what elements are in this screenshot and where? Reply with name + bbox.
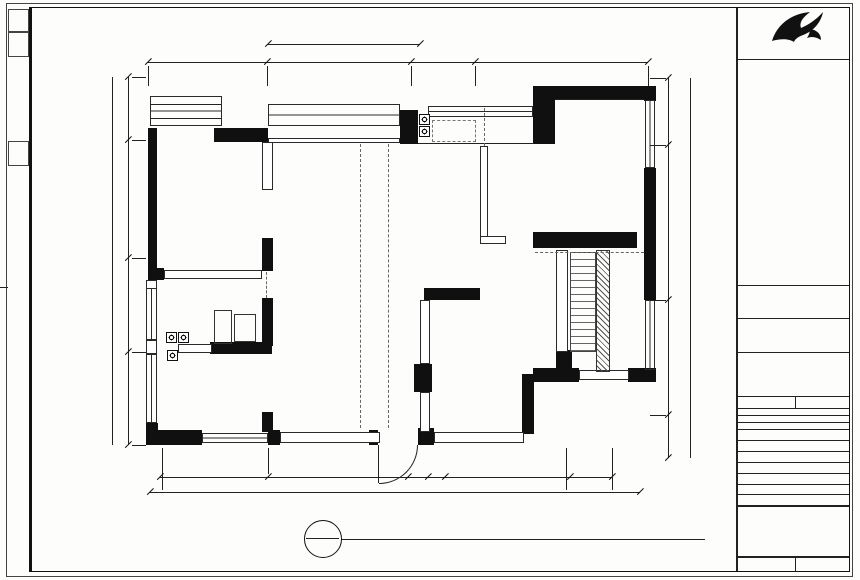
ext-line: [411, 66, 412, 86]
beam-dashed-line: [266, 272, 267, 298]
tb-line: [738, 422, 849, 423]
tb-line: [738, 451, 849, 452]
flue-icon: [166, 332, 177, 343]
wall-segment: [148, 268, 164, 280]
wall-segment: [555, 86, 645, 100]
margin-box-2: [8, 32, 29, 57]
wall-segment: [268, 430, 280, 445]
tb-line: [738, 429, 849, 430]
wall-segment: [628, 368, 656, 382]
thin-wall: [178, 344, 212, 353]
beam-dashed-line: [360, 144, 361, 428]
wall-segment: [644, 168, 656, 300]
title-underline: [306, 539, 705, 540]
bay-window: [150, 96, 222, 126]
wall-segment: [644, 86, 656, 101]
ext-line: [148, 66, 149, 86]
ext-line: [132, 445, 146, 446]
kitchen-window: [428, 106, 533, 117]
thin-wall: [268, 138, 400, 143]
tb-cell-divider: [795, 396, 796, 408]
thin-wall: [420, 392, 430, 432]
ext-line: [162, 448, 163, 490]
dim-line-left: [128, 77, 129, 445]
fixture-box: [234, 314, 256, 342]
bay-window-line: [151, 118, 221, 119]
tb-line: [738, 396, 849, 397]
margin-box-1: [8, 9, 29, 32]
margin-box-3: [8, 141, 29, 166]
ext-line: [650, 415, 666, 416]
flue-icon: [178, 332, 189, 343]
dim-line-left-total: [112, 77, 113, 445]
binding-mark: [0, 287, 8, 288]
brand-logo-icon: [768, 9, 828, 43]
ext-line: [650, 145, 666, 146]
fixture-box: [214, 310, 232, 344]
bay-window-line: [151, 104, 221, 105]
wall-segment: [262, 412, 273, 432]
thin-wall: [480, 146, 488, 238]
ext-line: [268, 448, 269, 474]
ext-line: [132, 77, 146, 78]
ext-line: [475, 66, 476, 86]
thin-wall: [280, 432, 380, 443]
wall-segment: [424, 288, 480, 300]
wall-segment: [522, 374, 534, 434]
ext-line: [650, 78, 666, 79]
wall-segment: [156, 430, 202, 445]
wall-segment: [533, 232, 637, 248]
drawing-stamp: [304, 520, 342, 558]
beam-dashed-line: [484, 108, 485, 146]
flue-icon: [419, 126, 430, 137]
flue-icon: [167, 350, 178, 361]
dim-line-right: [668, 78, 669, 458]
wall-segment: [556, 350, 572, 378]
tb-line: [738, 59, 849, 60]
tb-line: [738, 352, 849, 353]
right-window-lower: [645, 300, 655, 370]
thin-wall: [420, 300, 430, 364]
ext-line: [132, 352, 146, 353]
tb-cell-divider: [795, 556, 796, 571]
wall-segment: [400, 110, 418, 144]
thin-wall: [164, 270, 262, 279]
left-window-lower: [146, 354, 157, 423]
tb-line: [738, 556, 849, 558]
bottom-window: [202, 433, 268, 443]
dim-line-top: [148, 62, 648, 63]
tb-line: [738, 462, 849, 463]
ext-line: [650, 300, 666, 301]
stamp-divider: [306, 538, 339, 539]
balcony-window: [268, 104, 400, 126]
tb-line: [738, 484, 849, 485]
ext-line: [132, 140, 146, 141]
dim-line-top2: [268, 44, 420, 45]
ext-line: [612, 448, 613, 490]
ext-line: [132, 258, 146, 259]
ext-line: [267, 66, 268, 86]
tb-line: [738, 415, 849, 416]
wall-segment: [148, 128, 157, 270]
wall-segment: [414, 364, 432, 392]
tb-line: [738, 318, 849, 319]
flue-icon: [419, 114, 430, 125]
room-line: [555, 99, 644, 100]
tb-line: [738, 285, 849, 286]
titleblock-divider: [736, 8, 738, 571]
dim-line-bottom-total: [150, 492, 640, 493]
wall-segment: [533, 86, 555, 144]
wall-segment: [262, 238, 273, 271]
shaft-hatch: [570, 252, 596, 352]
ext-line: [566, 448, 567, 490]
counter-line: [418, 143, 534, 144]
tb-line: [738, 408, 849, 409]
thin-wall: [434, 432, 524, 443]
tb-line: [738, 505, 849, 507]
beam-dashed-line: [535, 252, 644, 253]
masonry-hatch-wall: [596, 250, 610, 372]
thin-wall: [556, 250, 568, 352]
thin-wall: [262, 142, 273, 190]
dim-line-bottom: [160, 477, 612, 478]
drawing-sheet: [0, 0, 860, 580]
thin-wall: [146, 340, 157, 354]
left-window-upper: [146, 288, 157, 340]
appliance-dashed-box: [432, 120, 476, 142]
tb-line: [738, 494, 849, 495]
beam-dashed-line: [388, 144, 389, 428]
right-window-upper: [645, 100, 655, 168]
wall-segment: [214, 128, 268, 142]
ext-line: [648, 66, 649, 86]
tb-line: [738, 440, 849, 441]
dim-line-right-total: [690, 78, 691, 458]
wall-segment: [262, 298, 273, 346]
thin-wall: [480, 236, 506, 244]
tb-line: [738, 473, 849, 474]
